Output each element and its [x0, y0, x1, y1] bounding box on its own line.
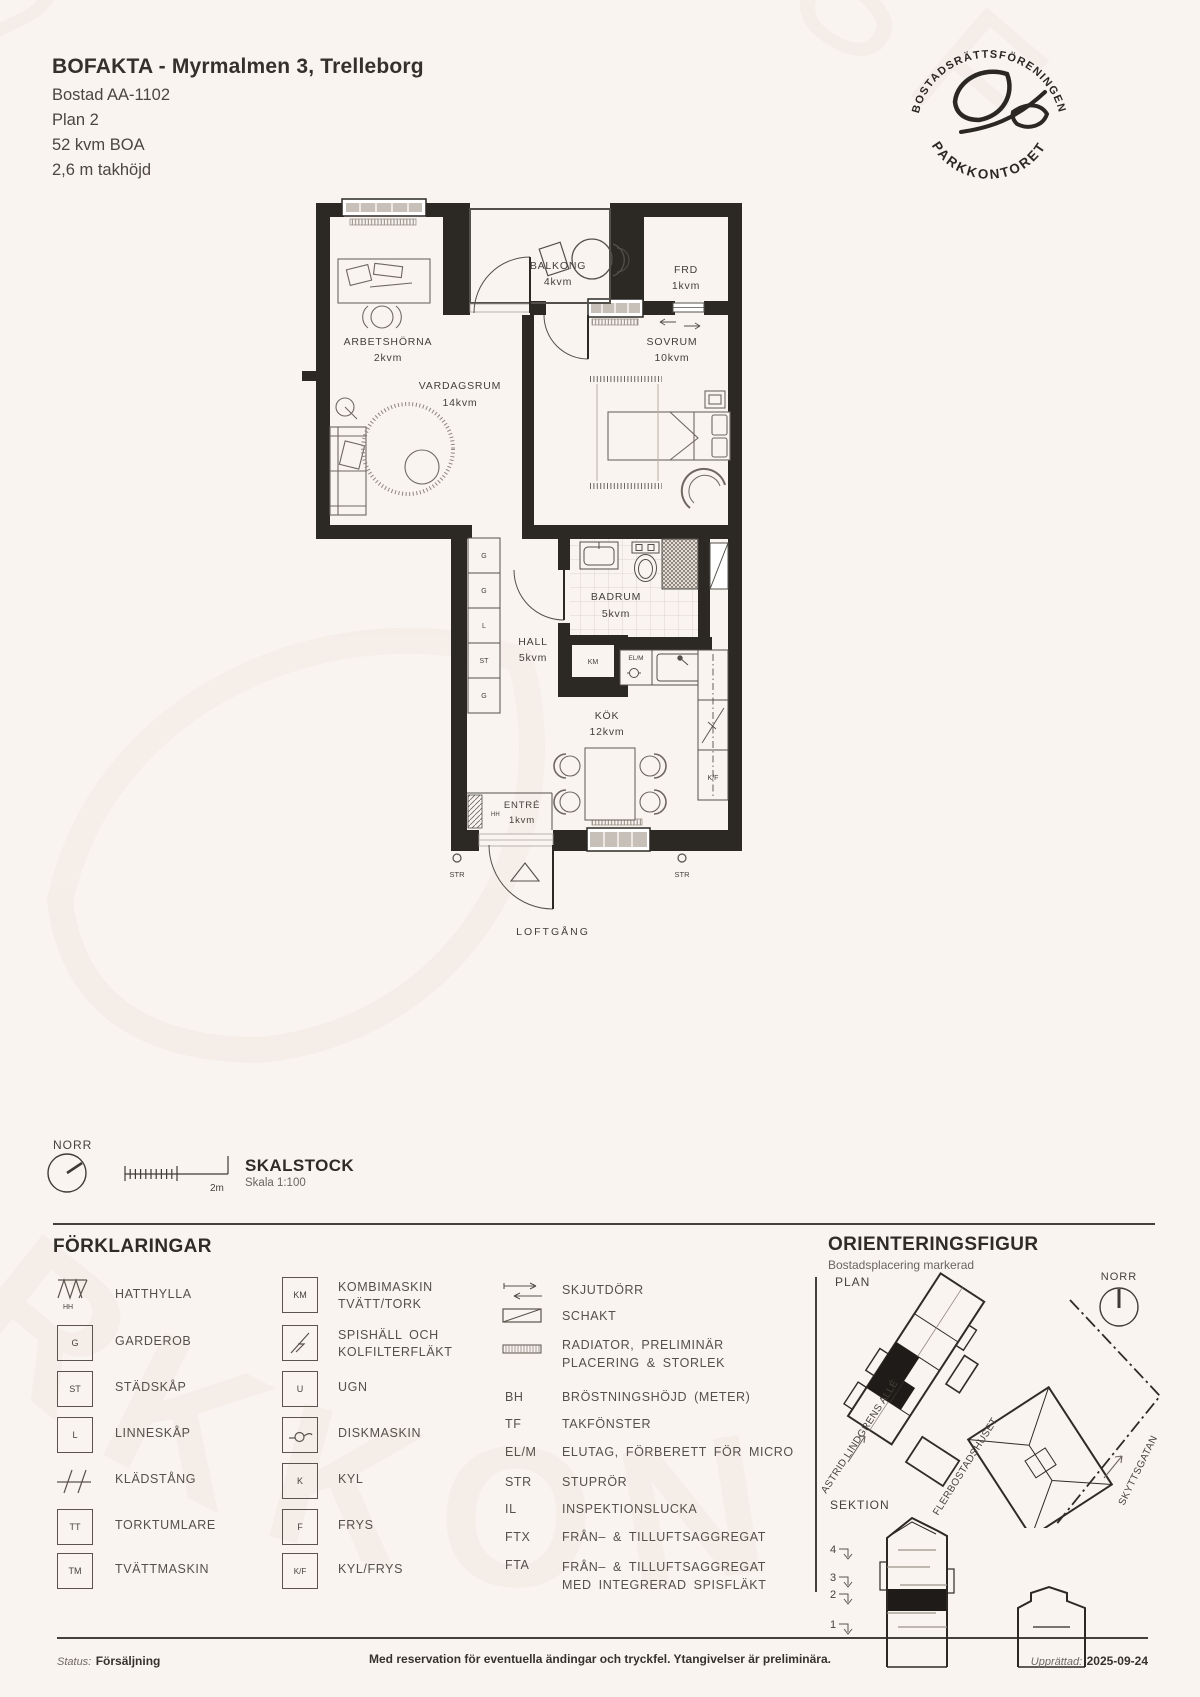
legend-diskmaskin: DISKMASKIN — [338, 1426, 421, 1440]
room-hall-area: 5kvm — [519, 652, 547, 664]
legend-radiator: RADIATOR, PRELIMINÄR PLACERING & STORLEK — [562, 1336, 725, 1372]
floor-2: 2 — [830, 1589, 836, 1601]
torktumlare-letter: TT — [70, 1522, 81, 1532]
legend-spishall-line2: KOLFILTERFLÄKT — [338, 1344, 452, 1361]
created-value: 2025-09-24 — [1087, 1654, 1148, 1668]
abbr-fta: FTA — [505, 1558, 529, 1572]
tvattmaskin-symbol: TM — [57, 1553, 93, 1589]
legend-stadskap: STÄDSKÅP — [115, 1380, 187, 1394]
street-astrid: ASTRID LINDGRENS ALLÉ — [818, 1377, 901, 1496]
abbr-ftx: FTX — [505, 1530, 530, 1544]
page-title: BOFAKTA - Myrmalmen 3, Trelleborg — [52, 55, 612, 79]
room-balkong: BALKONG — [530, 260, 586, 272]
legend-schakt: SCHAKT — [562, 1309, 616, 1323]
ugn-letter: U — [297, 1384, 304, 1394]
leaf-icon — [955, 72, 1047, 132]
legend-km-line2: TVÄTT/TORK — [338, 1296, 433, 1313]
floor-3: 3 — [830, 1572, 836, 1584]
property-boundary — [1055, 1300, 1160, 1526]
km-label: KM — [588, 659, 599, 666]
kladstang-icon — [55, 1466, 95, 1498]
str-label-right: STR — [675, 870, 691, 879]
garderob-letter: G — [71, 1338, 78, 1348]
section-marked-floor — [888, 1589, 946, 1611]
bedroom-furniture — [590, 379, 730, 508]
workcorner-furniture — [338, 259, 430, 328]
torktumlare-symbol: TT — [57, 1509, 93, 1545]
shower-area — [662, 539, 698, 589]
linneskap-symbol: L — [57, 1417, 93, 1453]
linneskap-letter: L — [72, 1430, 77, 1440]
legend-il: INSPEKTIONSLUCKA — [562, 1502, 697, 1516]
legend-bh: BRÖSTNINGSHÖJD (METER) — [562, 1390, 750, 1404]
svg-text:BOSTADSRÄTTSFÖRENINGEN: BOSTADSRÄTTSFÖRENINGEN — [910, 49, 1068, 115]
legend-elm: ELUTAG, FÖRBERETT FÖR MICRO — [562, 1445, 794, 1459]
abbr-str: STR — [505, 1475, 532, 1489]
room-vardagsrum-area: 14kvm — [443, 397, 478, 409]
legend-fta-line1: FRÅN– & TILLUFTSAGGREGAT — [562, 1558, 766, 1576]
svg-text:HH: HH — [63, 1304, 73, 1311]
km-letters: KM — [293, 1290, 307, 1300]
room-balkong-area: 4kvm — [544, 276, 572, 288]
orientation-compass-icon — [1100, 1288, 1138, 1326]
legend-tf: TAKFÖNSTER — [562, 1417, 651, 1431]
legend-hatthylla: HATTHYLLA — [115, 1287, 192, 1301]
legend-spishall: SPISHÄLL OCH KOLFILTERFLÄKT — [338, 1327, 452, 1361]
scale-title: SKALSTOCK — [245, 1156, 354, 1176]
legend-spishall-line1: SPISHÄLL OCH — [338, 1327, 452, 1344]
site-small-block — [946, 1355, 978, 1392]
closet-g2: G — [481, 588, 486, 595]
room-frd: FRD — [674, 264, 698, 276]
room-kok-area: 12kvm — [590, 726, 625, 738]
room-arbetshorna-area: 2kvm — [374, 352, 402, 364]
footer-created: Upprättad: 2025-09-24 — [1031, 1652, 1148, 1670]
ugn-symbol: U — [282, 1371, 318, 1407]
bedroom-door — [544, 315, 588, 359]
room-frd-area: 1kvm — [672, 280, 700, 292]
loftgang-label: LOFTGÅNG — [516, 925, 590, 938]
scale-2m-label: 2m — [210, 1183, 224, 1194]
legend-ugn: UGN — [338, 1380, 368, 1394]
legend-skjutdorr: SKJUTDÖRR — [562, 1283, 644, 1297]
legend-radiator-line1: RADIATOR, PRELIMINÄR — [562, 1336, 725, 1354]
bathroom-door — [514, 570, 564, 620]
stadskap-symbol: ST — [57, 1371, 93, 1407]
room-arbetshorna: ARBETSHÖRNA — [344, 336, 433, 348]
legend-title: FÖRKLARINGAR — [53, 1236, 212, 1258]
livingroom-furniture — [330, 398, 453, 515]
closet-g1: G — [481, 553, 486, 560]
tvattmaskin-letter: TM — [69, 1566, 82, 1576]
abbr-il: IL — [505, 1502, 517, 1516]
street-skyttsgatan: SKYTTSGATAN — [1104, 1434, 1160, 1507]
section-tall-building — [880, 1518, 954, 1667]
abbr-bh: BH — [505, 1390, 524, 1404]
elm-label: EL/M — [628, 655, 643, 662]
room-vardagsrum: VARDAGSRUM — [419, 380, 501, 392]
legend-km: KOMBIMASKIN TVÄTT/TORK — [338, 1279, 433, 1313]
legend-frys: FRYS — [338, 1518, 374, 1532]
area-boa: 52 kvm BOA — [52, 136, 612, 155]
spishall-symbol — [282, 1325, 318, 1361]
room-kok: KÖK — [595, 710, 620, 722]
building-label: FLERBOSTADSHUSET — [931, 1416, 1000, 1518]
frys-symbol: F — [282, 1509, 318, 1545]
kf-label: K/F — [708, 775, 719, 782]
plan-label: PLAN — [835, 1275, 870, 1289]
scale-bar: 2m — [120, 1150, 245, 1198]
floor-1: 1 — [830, 1619, 836, 1631]
legend-str: STUPRÖR — [562, 1475, 627, 1489]
svg-text:SKYTTSGATAN: SKYTTSGATAN — [1117, 1434, 1160, 1507]
closet-st: ST — [480, 658, 490, 665]
footer-disclaimer: Med reservation för eventuella ändingar … — [0, 1652, 1200, 1666]
legend-kladstang: KLÄDSTÅNG — [115, 1472, 196, 1486]
created-label: Upprättad: — [1031, 1656, 1082, 1668]
orientation-title: ORIENTERINGSFIGUR — [828, 1234, 1039, 1256]
scale-subtitle: Skala 1:100 — [245, 1177, 306, 1189]
kylfrys-letters: K/F — [294, 1567, 306, 1576]
skjutdorr-icon — [502, 1281, 544, 1301]
orientation-north-label: NORR — [1101, 1271, 1137, 1283]
parkkontoret-logo: BOSTADSRÄTTSFÖRENINGEN • PARKKONTORET • — [903, 28, 1075, 200]
level-marker-triangle — [511, 863, 539, 881]
legend-linneskap: LINNESKÅP — [115, 1426, 191, 1440]
legend-kyl: KYL — [338, 1472, 363, 1486]
orientation-plan: PLAN NORR — [818, 1266, 1168, 1528]
garderob-symbol: G — [57, 1325, 93, 1361]
section-divider-top — [53, 1223, 1155, 1225]
ceiling-height: 2,6 m takhöjd — [52, 161, 612, 180]
floor-plan: KM EL/M K/F — [300, 195, 750, 945]
legend-torktumlare: TORKTUMLARE — [115, 1518, 216, 1532]
title-block: BOFAKTA - Myrmalmen 3, Trelleborg Bostad… — [52, 55, 612, 180]
logo-top-text: BOSTADSRÄTTSFÖRENINGEN — [910, 49, 1068, 115]
km-symbol: KM — [282, 1277, 318, 1313]
abbr-tf: TF — [505, 1417, 521, 1431]
legend-tvattmaskin: TVÄTTMASKIN — [115, 1562, 209, 1576]
closet-g3: G — [481, 693, 486, 700]
dining-set — [554, 748, 666, 820]
lightning-icon — [285, 1328, 315, 1358]
legend-fta-line2: MED INTEGRERAD SPISFLÄKT — [562, 1576, 766, 1594]
hh-label: HH — [491, 812, 500, 818]
diskmaskin-symbol — [282, 1417, 318, 1453]
radiator-icon — [502, 1342, 544, 1356]
kylfrys-symbol: K/F — [282, 1553, 318, 1589]
closet-l: L — [482, 623, 486, 630]
str-markers — [453, 854, 686, 862]
bofakta-page: BOSTADSRÄTTSF PARKKON BOFAKTA - Myrmalme… — [0, 0, 1200, 1697]
str-label-left: STR — [450, 870, 466, 879]
dishwasher-icon — [285, 1420, 315, 1450]
vertical-divider — [815, 1277, 817, 1592]
legend-fta: FRÅN– & TILLUFTSAGGREGAT MED INTEGRERAD … — [562, 1558, 766, 1594]
legend-radiator-line2: PLACERING & STORLEK — [562, 1354, 725, 1372]
room-entre: ENTRÉ — [504, 800, 540, 811]
room-sovrum: SOVRUM — [647, 336, 698, 348]
abbr-elm: EL/M — [505, 1445, 537, 1459]
hat-shelf-icon — [468, 795, 482, 828]
north-compass-icon — [42, 1148, 92, 1198]
schakt-icon — [502, 1307, 544, 1325]
floor-4: 4 — [830, 1544, 836, 1556]
kyl-symbol: K — [282, 1463, 318, 1499]
plan-number: Plan 2 — [52, 111, 612, 130]
entrance-door — [479, 834, 553, 909]
room-sovrum-area: 10kvm — [655, 352, 690, 364]
frys-letter: F — [297, 1522, 303, 1532]
legend-garderob: GARDEROB — [115, 1334, 191, 1348]
floor-callout-arrows — [839, 1549, 852, 1634]
kyl-letter: K — [297, 1476, 303, 1486]
stadskap-letter: ST — [69, 1384, 81, 1394]
room-badrum: BADRUM — [591, 591, 641, 603]
legend-kylfrys: KYL/FRYS — [338, 1562, 403, 1576]
legend-ftx: FRÅN– & TILLUFTSAGGREGAT — [562, 1530, 766, 1544]
legend-km-line1: KOMBIMASKIN — [338, 1279, 433, 1296]
room-hall: HALL — [518, 636, 547, 648]
hatthylla-icon: HH — [55, 1276, 95, 1316]
room-badrum-area: 5kvm — [602, 608, 630, 620]
apartment-id: Bostad AA-1102 — [52, 86, 612, 105]
schakt — [710, 543, 728, 589]
room-entre-area: 1kvm — [509, 815, 535, 826]
